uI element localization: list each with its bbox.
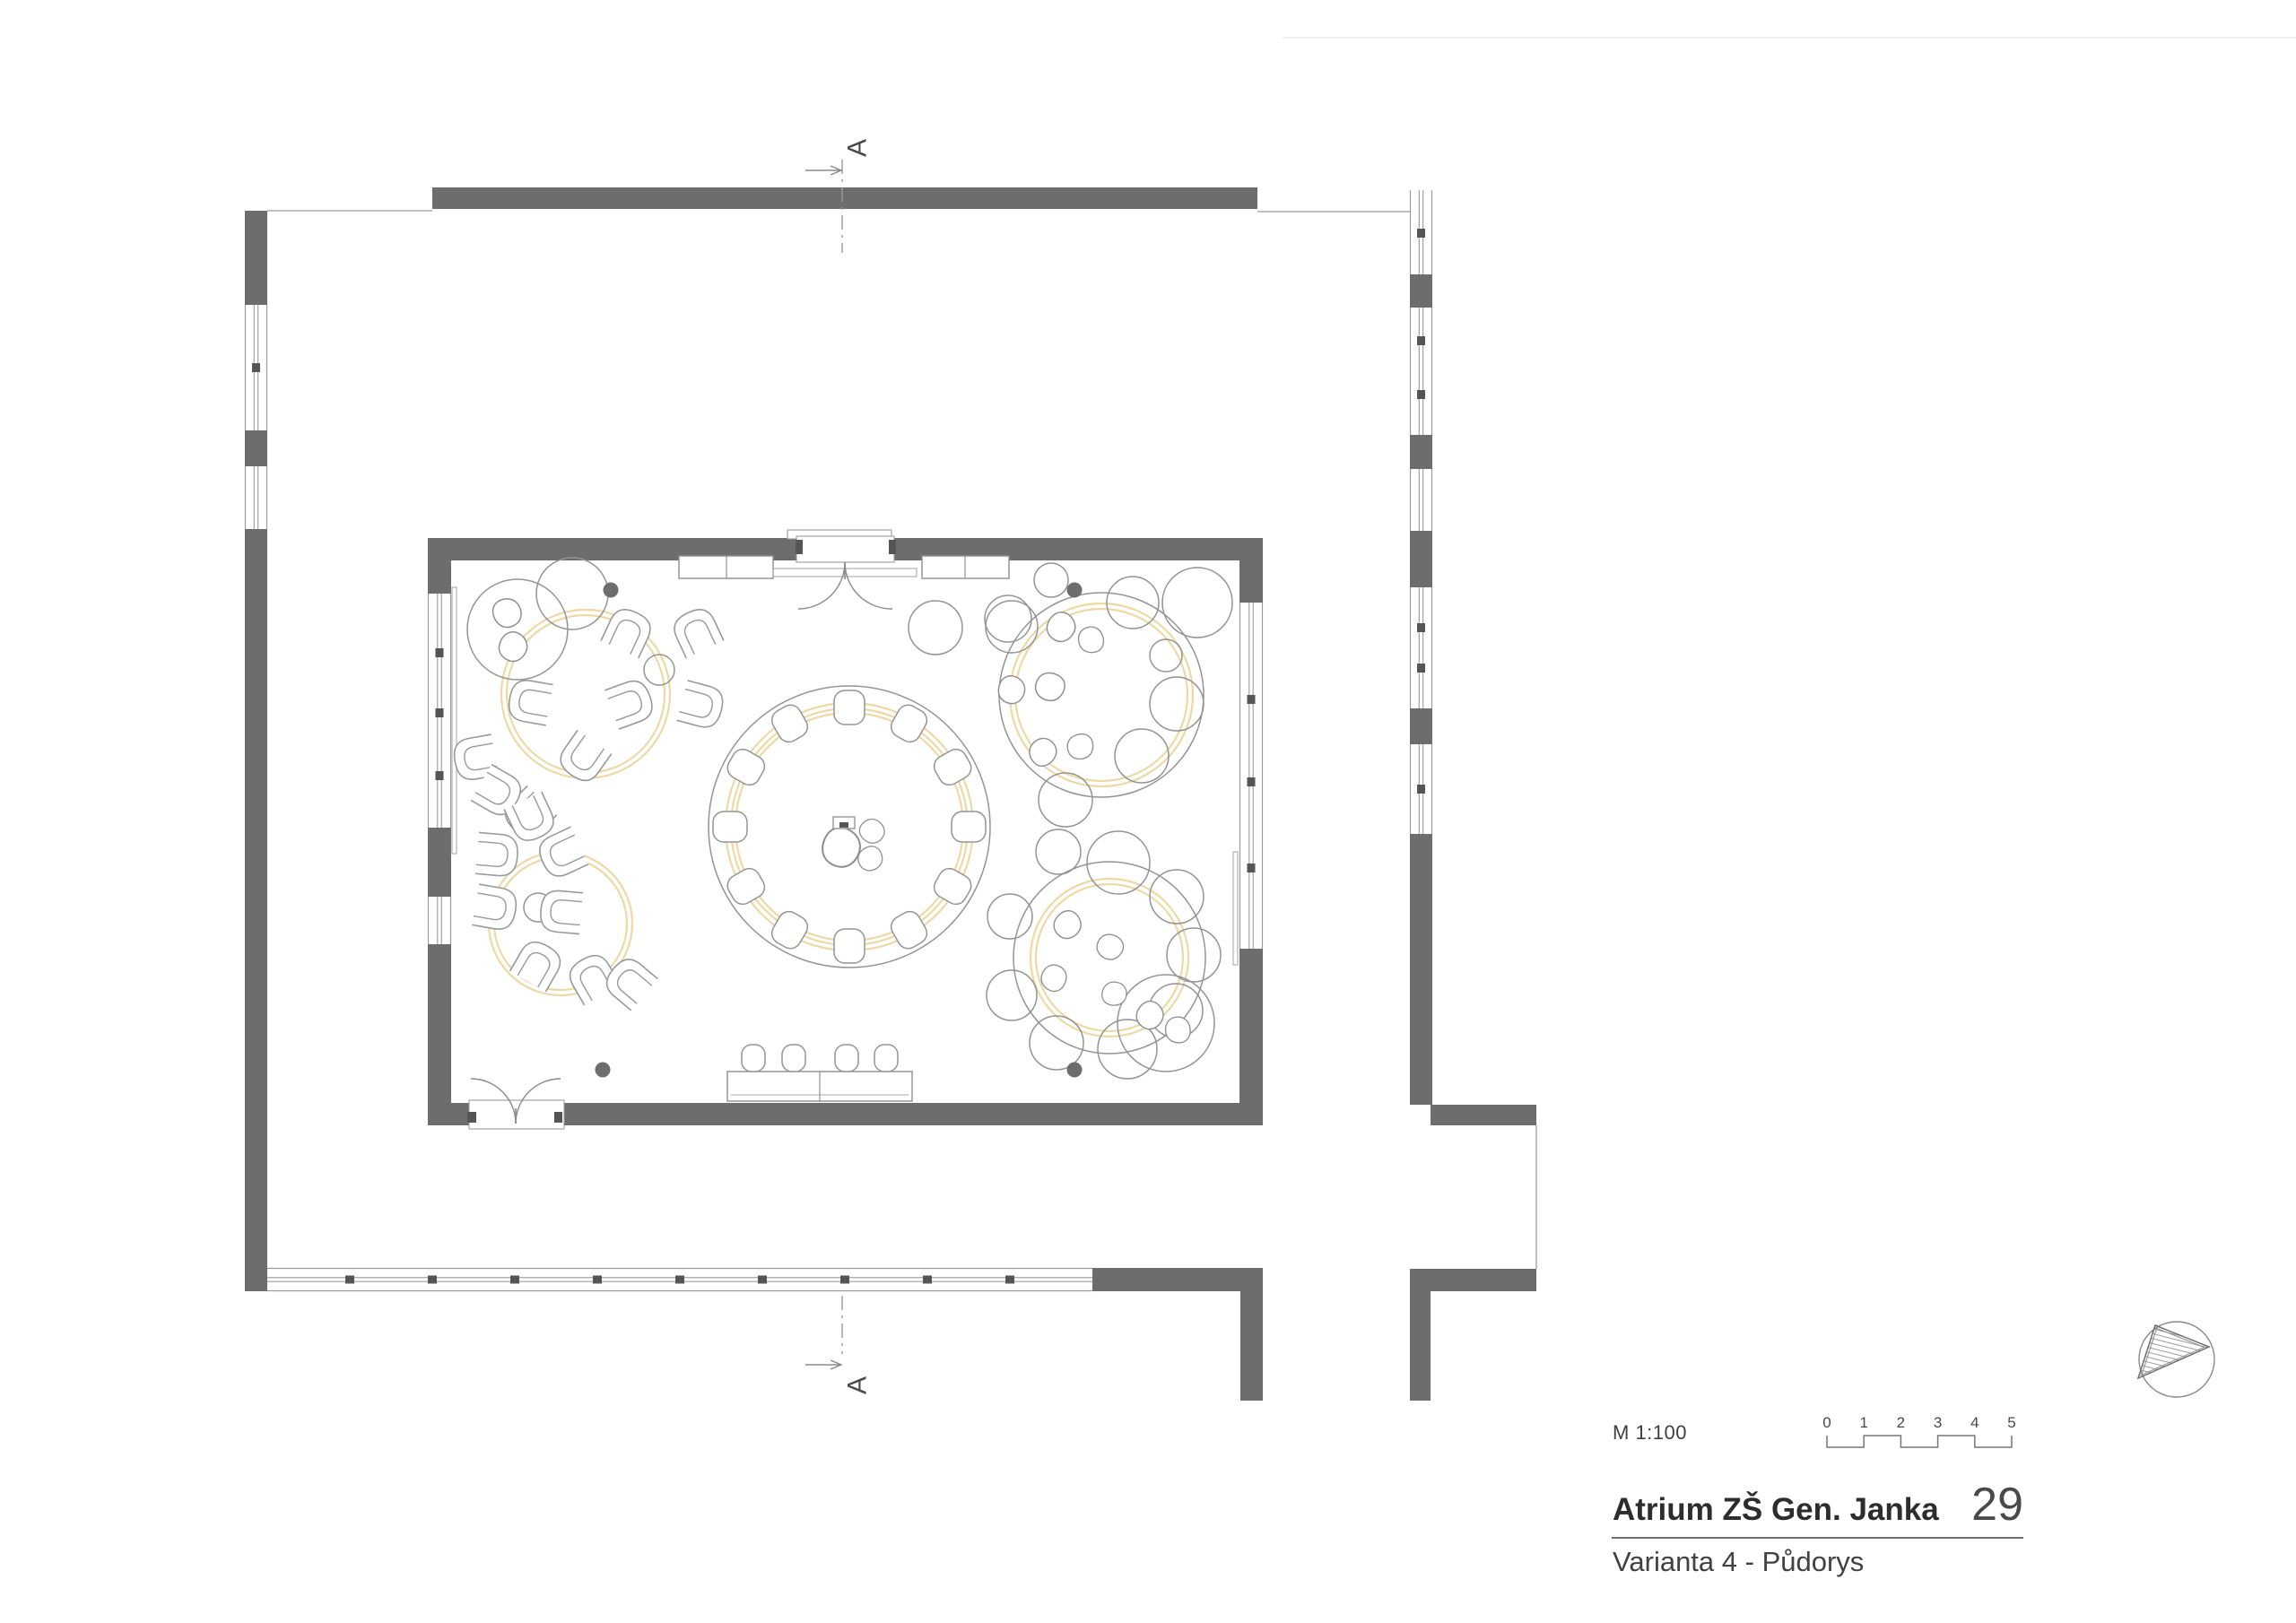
- mullion: [436, 771, 444, 780]
- lounge-chair: [472, 884, 518, 932]
- wall: [1410, 1269, 1536, 1291]
- wall: [1431, 1105, 1536, 1125]
- mullion: [1417, 623, 1425, 632]
- lounge-chair: [510, 936, 566, 992]
- wall: [428, 1103, 473, 1125]
- section-label: A: [843, 139, 873, 157]
- lounge-chair: [677, 681, 726, 731]
- table-circle: [1039, 773, 1092, 827]
- double-door: [467, 1079, 564, 1129]
- mullion: [840, 1276, 849, 1284]
- lounge-chair: [600, 953, 657, 1011]
- section-marker: A: [805, 1296, 873, 1394]
- rail: [1233, 852, 1238, 965]
- floor-plan-drawing: AA012345: [0, 0, 2296, 1623]
- window: [1410, 469, 1432, 531]
- bean-bag-seat: [1049, 907, 1086, 943]
- mullion: [1417, 336, 1425, 345]
- scale-bar-tick-label: 1: [1859, 1414, 1867, 1431]
- wall: [1410, 435, 1432, 469]
- wall: [1239, 949, 1263, 1103]
- mullion: [252, 363, 260, 372]
- lounge-chair: [604, 676, 657, 729]
- table-circle: [999, 593, 1204, 797]
- stool: [782, 1045, 805, 1072]
- table-circle: [1107, 577, 1159, 629]
- door-hinge: [796, 540, 803, 554]
- wall: [1410, 834, 1432, 1105]
- table-circle: [1150, 677, 1204, 731]
- wall: [245, 430, 267, 466]
- bean-bag-seat: [821, 826, 862, 869]
- mullion: [1417, 229, 1425, 238]
- wall: [1410, 1291, 1431, 1401]
- column: [1067, 1063, 1083, 1078]
- scale-bar: [1827, 1436, 2012, 1447]
- window: [1410, 744, 1432, 834]
- mullion: [1248, 864, 1256, 872]
- mullion: [1417, 390, 1425, 399]
- section-label: A: [843, 1376, 873, 1394]
- lounge-chair: [475, 832, 519, 877]
- window: [267, 1268, 1092, 1291]
- table-circle: [985, 595, 1031, 642]
- table-circle: [909, 601, 962, 655]
- column: [1067, 583, 1083, 598]
- column: [604, 583, 619, 598]
- wall: [1410, 708, 1432, 744]
- table-circle: [987, 970, 1037, 1020]
- bean-bag-seat: [856, 815, 888, 846]
- scale-bar-tick-label: 3: [1934, 1414, 1942, 1431]
- construction-lines-layer: [267, 38, 2296, 1269]
- wall: [245, 529, 267, 1291]
- ring-seat: [713, 811, 747, 842]
- wall: [428, 560, 451, 594]
- mullion: [1248, 777, 1256, 786]
- table-circle: [1162, 568, 1232, 638]
- mullion: [923, 1276, 932, 1284]
- window: [1239, 603, 1263, 949]
- mullion: [1417, 664, 1425, 673]
- wall: [1410, 274, 1432, 308]
- door-swing-arc: [845, 562, 892, 609]
- mullion: [428, 1276, 437, 1284]
- mullion: [345, 1276, 354, 1284]
- scale-bar-tick-label: 5: [2007, 1414, 2015, 1431]
- mullion: [593, 1276, 602, 1284]
- table-circle: [1034, 563, 1068, 597]
- wall: [1240, 1291, 1263, 1401]
- ring-seat: [834, 690, 865, 725]
- wall: [428, 944, 451, 1103]
- stool: [874, 1045, 898, 1072]
- stool: [835, 1045, 858, 1072]
- window: [245, 466, 267, 529]
- mullion: [1005, 1276, 1014, 1284]
- door-swing-arc: [798, 562, 845, 609]
- ring-seat: [952, 811, 986, 842]
- wall: [558, 1103, 1263, 1125]
- scale-bar-tick-label: 0: [1822, 1414, 1831, 1431]
- bean-bag-seat: [1161, 1013, 1194, 1046]
- bean-bag-seat: [1024, 733, 1061, 770]
- table-circle: [467, 579, 568, 680]
- center-mark: [839, 822, 848, 828]
- mullion: [436, 648, 444, 657]
- table-circle: [536, 558, 608, 629]
- lounge-chair: [506, 678, 552, 725]
- wall: [428, 828, 451, 897]
- scale-bar-tick-label: 2: [1897, 1414, 1905, 1431]
- door-hinge: [554, 1112, 562, 1123]
- table-circle: [1036, 829, 1081, 874]
- lounge-chair: [539, 890, 583, 934]
- mullion: [1248, 695, 1256, 704]
- mullion: [675, 1276, 684, 1284]
- window: [1410, 587, 1432, 708]
- bean-bag-seat: [1063, 729, 1098, 764]
- wall: [1092, 1268, 1263, 1291]
- bean-bag-seat: [1100, 980, 1128, 1008]
- door-hinge: [889, 540, 896, 554]
- window: [245, 305, 267, 430]
- wall: [245, 211, 267, 305]
- bean-bag-seat: [1074, 622, 1109, 657]
- bean-bag-seat: [487, 593, 526, 633]
- window: [1410, 308, 1432, 435]
- center-ring-layer: [713, 690, 986, 963]
- window: [1410, 190, 1432, 274]
- lounge-chair: [669, 604, 724, 658]
- lounge-chair: [554, 730, 611, 786]
- windows-layer: [245, 190, 1432, 1291]
- bean-bag-seat: [1095, 933, 1126, 961]
- wall: [432, 187, 1257, 209]
- stool: [742, 1045, 765, 1072]
- wall: [1239, 560, 1263, 603]
- table-circle: [1030, 1016, 1083, 1070]
- ring-seat: [834, 929, 865, 963]
- mullion: [758, 1276, 767, 1284]
- table-circle: [1167, 928, 1221, 982]
- window: [428, 594, 451, 828]
- door-hinge: [467, 1112, 476, 1123]
- bean-bag-seat: [1133, 998, 1167, 1033]
- section-markers-layer: AA: [805, 139, 873, 1394]
- north-arrow-layer: [2130, 1318, 2215, 1404]
- mullion: [1417, 785, 1425, 794]
- table-circle: [1115, 729, 1169, 783]
- bean-bag-seat: [998, 676, 1024, 704]
- column: [596, 1063, 611, 1078]
- mullion: [436, 708, 444, 717]
- table-circle: [987, 894, 1032, 939]
- window: [428, 897, 451, 944]
- scale-bar-tick-label: 4: [1970, 1414, 1979, 1431]
- bean-bag-seat: [1036, 673, 1065, 701]
- table-circle: [644, 655, 674, 685]
- rail: [452, 587, 457, 854]
- floor-plan-sheet: AA012345 M 1:100 Atrium ZŠ Gen. Janka 29…: [0, 0, 2296, 1623]
- wall: [1410, 531, 1432, 587]
- scale-bar-layer: 012345: [1822, 1414, 2015, 1447]
- mullion: [510, 1276, 519, 1284]
